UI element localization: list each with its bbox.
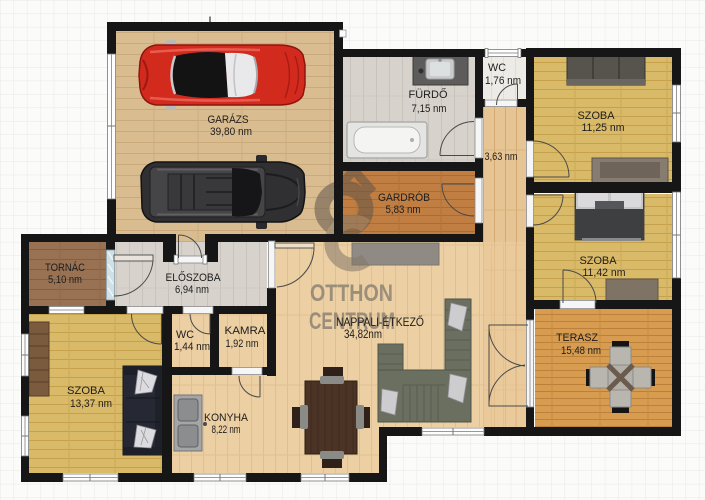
svg-text:3,63 nm: 3,63 nm [485, 151, 518, 163]
svg-text:6,94 nm: 6,94 nm [175, 284, 209, 296]
svg-text:ELŐSZOBA: ELŐSZOBA [166, 270, 222, 284]
svg-text:34,82nm: 34,82nm [344, 329, 382, 341]
svg-text:5,83 nm: 5,83 nm [386, 204, 421, 216]
svg-text:1,92 nm: 1,92 nm [226, 338, 259, 350]
svg-text:SZOBA: SZOBA [580, 255, 618, 267]
svg-text:GARDRÓB: GARDRÓB [378, 191, 430, 204]
svg-text:TERASZ: TERASZ [556, 332, 598, 344]
svg-text:SZOBA: SZOBA [578, 110, 616, 122]
svg-text:11,25 nm: 11,25 nm [582, 122, 625, 134]
svg-text:WC: WC [488, 62, 506, 74]
svg-text:SZOBA: SZOBA [67, 385, 106, 397]
svg-text:8,22 nm: 8,22 nm [212, 424, 241, 436]
svg-text:13,37 nm: 13,37 nm [70, 398, 112, 410]
svg-text:1,44 nm: 1,44 nm [174, 341, 210, 353]
svg-text:TORNÁC: TORNÁC [45, 261, 85, 274]
svg-text:WC: WC [176, 329, 194, 341]
svg-text:FÜRDŐ: FÜRDŐ [409, 87, 448, 101]
svg-text:5,10 nm: 5,10 nm [48, 274, 82, 286]
svg-text:NAPPALI-ÉTKEZŐ: NAPPALI-ÉTKEZŐ [336, 314, 424, 329]
svg-text:KAMRA: KAMRA [225, 325, 267, 337]
svg-text:15,48 nm: 15,48 nm [561, 345, 601, 357]
svg-text:11,42 nm: 11,42 nm [583, 267, 626, 279]
svg-text:KONYHA: KONYHA [204, 412, 249, 424]
svg-text:1,76 nm: 1,76 nm [485, 75, 521, 87]
svg-text:GARÁZS: GARÁZS [208, 113, 249, 126]
svg-text:OTTHON: OTTHON [310, 280, 393, 307]
svg-text:7,15 nm: 7,15 nm [412, 103, 447, 115]
svg-text:39,80 nm: 39,80 nm [210, 126, 252, 138]
